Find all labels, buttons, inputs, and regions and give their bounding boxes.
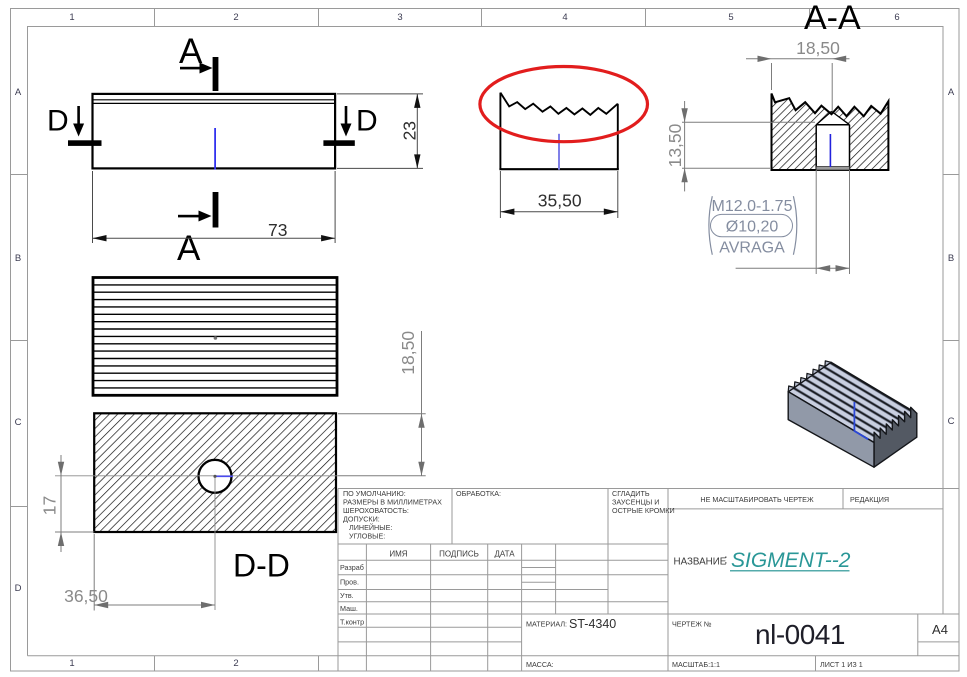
svg-text:ДАТА: ДАТА (494, 550, 515, 559)
svg-text:НЕ МАСШТАБИРОВАТЬ ЧЕРТЕЖ: НЕ МАСШТАБИРОВАТЬ ЧЕРТЕЖ (700, 495, 814, 504)
svg-text:17: 17 (40, 496, 60, 515)
svg-text:3: 3 (397, 12, 402, 23)
svg-text:2: 2 (233, 12, 238, 23)
svg-text:Разраб: Разраб (340, 563, 364, 572)
svg-text:Ø10,20: Ø10,20 (726, 219, 779, 236)
svg-text:D: D (356, 105, 378, 138)
svg-text:МАСШТАБ:1:1: МАСШТАБ:1:1 (672, 660, 720, 669)
svg-text:4: 4 (562, 12, 567, 23)
svg-text:D: D (47, 105, 69, 138)
svg-text:23: 23 (400, 121, 420, 140)
svg-text:Т.контр: Т.контр (340, 618, 364, 627)
svg-text:ОСТРЫЕ КРОМКИ: ОСТРЫЕ КРОМКИ (612, 506, 675, 515)
svg-text:A: A (179, 32, 203, 71)
svg-text:AVRAGA: AVRAGA (719, 240, 785, 257)
svg-text:НАЗВАНИЕ: НАЗВАНИЕ (674, 557, 727, 568)
svg-text::: : (724, 552, 728, 567)
svg-text:D: D (15, 583, 22, 594)
svg-text:МАТЕРИАЛ:: МАТЕРИАЛ: (526, 620, 567, 629)
svg-text:35,50: 35,50 (538, 191, 582, 211)
svg-text:МАССА:: МАССА: (526, 660, 554, 669)
svg-text:5: 5 (728, 12, 733, 23)
svg-text:D-D: D-D (233, 548, 290, 584)
svg-text:Пров.: Пров. (340, 578, 359, 587)
svg-text:C: C (15, 417, 22, 428)
svg-text:A: A (948, 87, 955, 98)
svg-text:73: 73 (268, 220, 287, 240)
svg-text:A: A (15, 87, 22, 98)
svg-text:18,50: 18,50 (398, 331, 418, 375)
svg-text:B: B (948, 253, 954, 264)
svg-text:13,50: 13,50 (665, 123, 685, 167)
svg-text:УГЛОВЫЕ:: УГЛОВЫЕ: (349, 532, 385, 541)
svg-text:A4: A4 (932, 622, 948, 637)
svg-text:Маш.: Маш. (340, 604, 358, 613)
svg-text:nl-0041: nl-0041 (755, 619, 845, 650)
svg-text:2: 2 (233, 658, 238, 669)
svg-text:ПОДПИСЬ: ПОДПИСЬ (439, 550, 479, 559)
svg-text:ST-4340: ST-4340 (569, 617, 616, 631)
svg-text:M12.0-1.75: M12.0-1.75 (712, 198, 793, 215)
svg-text:A-A: A-A (804, 0, 861, 37)
svg-text:SIGMENT--2: SIGMENT--2 (731, 549, 851, 572)
svg-text:ОБРАБОТКА:: ОБРАБОТКА: (456, 489, 501, 498)
svg-text:B: B (15, 253, 21, 264)
svg-text:C: C (948, 416, 955, 427)
svg-text:ЧЕРТЕЖ №: ЧЕРТЕЖ № (672, 620, 712, 629)
svg-text:РЕДАКЦИЯ: РЕДАКЦИЯ (850, 495, 889, 504)
svg-text:18,50: 18,50 (796, 38, 840, 58)
svg-text:ИМЯ: ИМЯ (389, 550, 407, 559)
svg-text:Утв.: Утв. (340, 591, 354, 600)
svg-text:6: 6 (894, 12, 899, 23)
svg-text:A: A (177, 229, 201, 268)
svg-text:1: 1 (69, 12, 74, 23)
svg-text:1: 1 (69, 658, 74, 669)
svg-text:36,50: 36,50 (64, 586, 108, 606)
svg-text:ЛИСТ 1 ИЗ 1: ЛИСТ 1 ИЗ 1 (820, 660, 863, 669)
